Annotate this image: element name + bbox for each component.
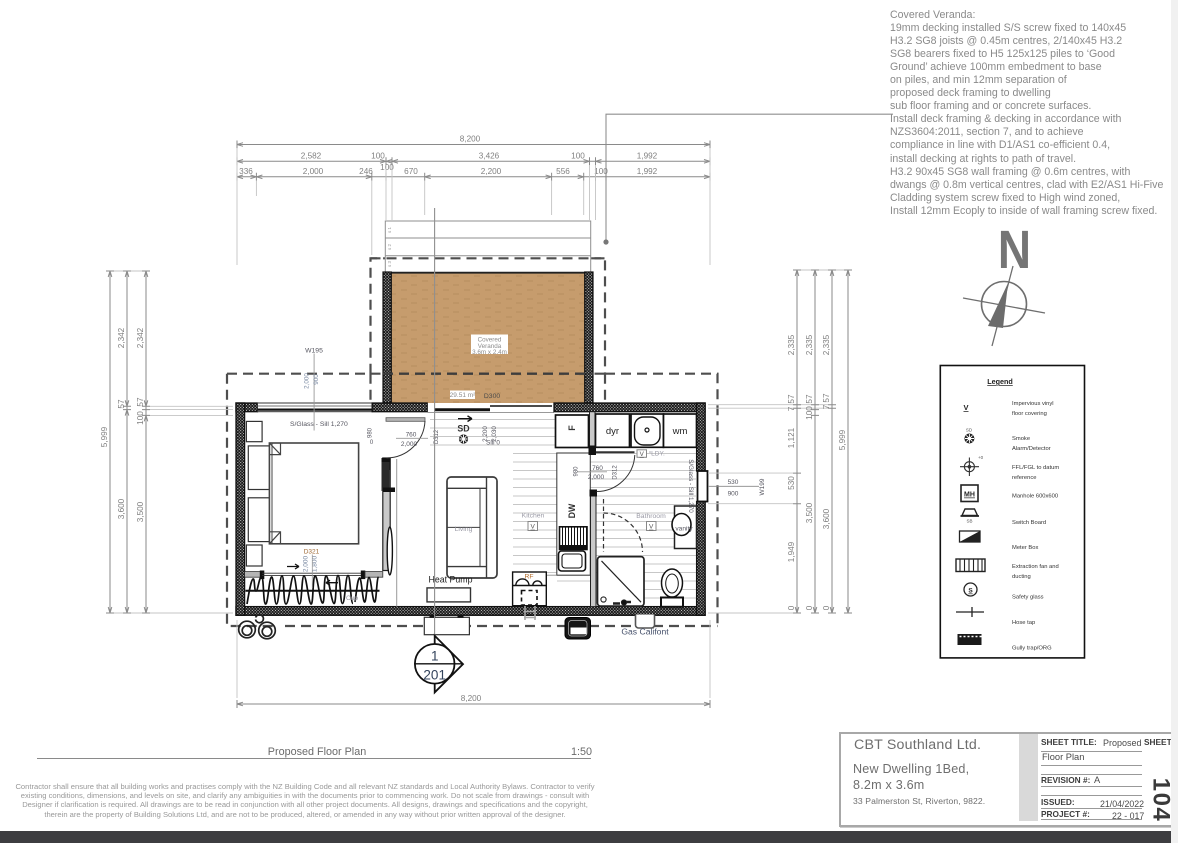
svg-text:0: 0 — [370, 440, 374, 446]
svg-text:S: S — [968, 588, 973, 595]
svg-text:530: 530 — [728, 479, 739, 486]
svg-text:Impervious vinyl: Impervious vinyl — [1012, 401, 1054, 407]
svg-text:670: 670 — [404, 167, 418, 176]
svg-text:57: 57 — [136, 397, 145, 407]
svg-text:100: 100 — [594, 167, 608, 176]
svg-text:100: 100 — [805, 406, 814, 420]
svg-text:2,000: 2,000 — [304, 373, 311, 389]
svg-text:s 1: s 1 — [387, 227, 392, 234]
svg-text:100: 100 — [571, 151, 585, 160]
svg-text:F: F — [567, 425, 577, 431]
svg-text:2,335: 2,335 — [787, 334, 796, 355]
svg-text:760: 760 — [592, 465, 603, 472]
svg-text:0: 0 — [805, 605, 814, 610]
svg-text:W195: W195 — [305, 348, 323, 355]
svg-text:1,121: 1,121 — [787, 427, 796, 448]
svg-text:2,582: 2,582 — [301, 151, 322, 160]
svg-text:V: V — [963, 403, 968, 412]
svg-text:Safety glass: Safety glass — [1012, 595, 1044, 601]
svg-text:0: 0 — [822, 605, 831, 610]
svg-text:ducting: ducting — [1012, 574, 1031, 580]
svg-text:Gas Califont: Gas Califont — [621, 627, 669, 637]
svg-text:Alarm/Detector: Alarm/Detector — [1012, 446, 1051, 452]
svg-text:Smoke: Smoke — [1012, 436, 1030, 442]
svg-text:3,500: 3,500 — [805, 502, 814, 523]
svg-text:Living: Living — [455, 526, 473, 533]
svg-text:2,000: 2,000 — [303, 555, 310, 572]
svg-text:7: 7 — [787, 406, 796, 411]
svg-text:1: 1 — [431, 649, 439, 664]
svg-text:+0: +0 — [978, 455, 984, 460]
svg-text:900: 900 — [728, 491, 739, 498]
svg-text:D321: D321 — [304, 549, 320, 556]
svg-text:W199: W199 — [759, 478, 766, 495]
svg-text:760: 760 — [406, 431, 417, 438]
svg-text:SD: SD — [966, 428, 973, 433]
svg-text:2,000: 2,000 — [588, 474, 605, 481]
svg-text:57: 57 — [805, 394, 814, 404]
svg-text:Sill 0: Sill 0 — [486, 440, 500, 447]
svg-text:57: 57 — [822, 393, 831, 403]
svg-text:Switch Board: Switch Board — [1012, 520, 1046, 526]
svg-text:556: 556 — [556, 167, 570, 176]
svg-text:900: 900 — [313, 374, 320, 385]
svg-text:2,342: 2,342 — [117, 327, 126, 348]
svg-text:RF: RF — [524, 574, 533, 581]
svg-text:1,949: 1,949 — [787, 541, 796, 562]
svg-text:2,335: 2,335 — [822, 334, 831, 355]
svg-text:dyr: dyr — [606, 426, 619, 437]
svg-text:N: N — [998, 220, 1031, 280]
svg-text:D312: D312 — [613, 465, 619, 480]
svg-text:57: 57 — [787, 394, 796, 404]
svg-text:Extraction fan and: Extraction fan and — [1012, 564, 1059, 570]
svg-text:530: 530 — [787, 476, 796, 490]
svg-text:V: V — [531, 524, 536, 531]
svg-text:vanity: vanity — [675, 526, 693, 533]
svg-text:980: 980 — [368, 427, 374, 438]
svg-text:2,000: 2,000 — [303, 167, 324, 176]
svg-text:100: 100 — [136, 411, 145, 425]
svg-text:wm: wm — [672, 426, 688, 437]
svg-text:DW: DW — [567, 503, 577, 518]
svg-text:100: 100 — [371, 151, 385, 160]
svg-text:246: 246 — [359, 167, 373, 176]
svg-text:reference: reference — [1012, 475, 1037, 481]
svg-text:2,335: 2,335 — [805, 334, 814, 355]
svg-text:2,342: 2,342 — [136, 327, 145, 348]
svg-text:Bathroom: Bathroom — [636, 513, 666, 520]
svg-text:floor covering: floor covering — [1012, 411, 1047, 417]
svg-text:1,992: 1,992 — [637, 151, 658, 160]
svg-text:5,999: 5,999 — [838, 429, 847, 450]
svg-text:Manhole 600x600: Manhole 600x600 — [1012, 494, 1058, 500]
svg-text:7: 7 — [822, 404, 831, 409]
svg-text:MH: MH — [964, 492, 975, 499]
svg-text:Cup: Cup — [346, 595, 358, 602]
svg-text:8,200: 8,200 — [461, 694, 482, 703]
svg-text:2,200: 2,200 — [481, 167, 502, 176]
svg-text:V: V — [649, 524, 654, 531]
svg-text:3,600: 3,600 — [822, 508, 831, 529]
svg-text:D300: D300 — [484, 393, 500, 400]
svg-text:3,426: 3,426 — [479, 151, 500, 160]
svg-text:“LDY.: “LDY. — [649, 451, 665, 458]
svg-text:8,200: 8,200 — [460, 135, 481, 144]
svg-text:5,999: 5,999 — [100, 426, 109, 447]
svg-text:Legend: Legend — [987, 377, 1013, 386]
svg-text:2,000: 2,000 — [401, 441, 418, 448]
svg-text:57: 57 — [117, 399, 126, 409]
svg-text:3,500: 3,500 — [136, 501, 145, 522]
svg-text:29.51 m²: 29.51 m² — [450, 392, 476, 399]
svg-text:Kitchen: Kitchen — [522, 513, 545, 520]
svg-text:FFL/FGL to datum: FFL/FGL to datum — [1012, 465, 1059, 471]
svg-text:S/Glass - Sill 1,270: S/Glass - Sill 1,270 — [687, 459, 694, 513]
svg-text:3.6m x 2.4m: 3.6m x 2.4m — [472, 349, 507, 356]
svg-text:Gully trap/ORG: Gully trap/ORG — [1012, 646, 1052, 652]
svg-text:0: 0 — [787, 605, 796, 610]
svg-text:SB: SB — [966, 519, 972, 524]
svg-text:980: 980 — [574, 466, 580, 477]
svg-text:1,992: 1,992 — [637, 167, 658, 176]
svg-text:Hose tap: Hose tap — [1012, 620, 1035, 626]
svg-text:336: 336 — [239, 167, 253, 176]
svg-text:201: 201 — [423, 668, 446, 683]
svg-text:3,600: 3,600 — [117, 498, 126, 519]
svg-text:s 2: s 2 — [387, 244, 392, 251]
svg-text:s 3: s 3 — [387, 261, 392, 268]
svg-text:S/Glass - Sill 1,270: S/Glass - Sill 1,270 — [290, 421, 348, 428]
svg-text:SD: SD — [457, 424, 469, 434]
svg-text:Meter Box: Meter Box — [1012, 545, 1039, 551]
